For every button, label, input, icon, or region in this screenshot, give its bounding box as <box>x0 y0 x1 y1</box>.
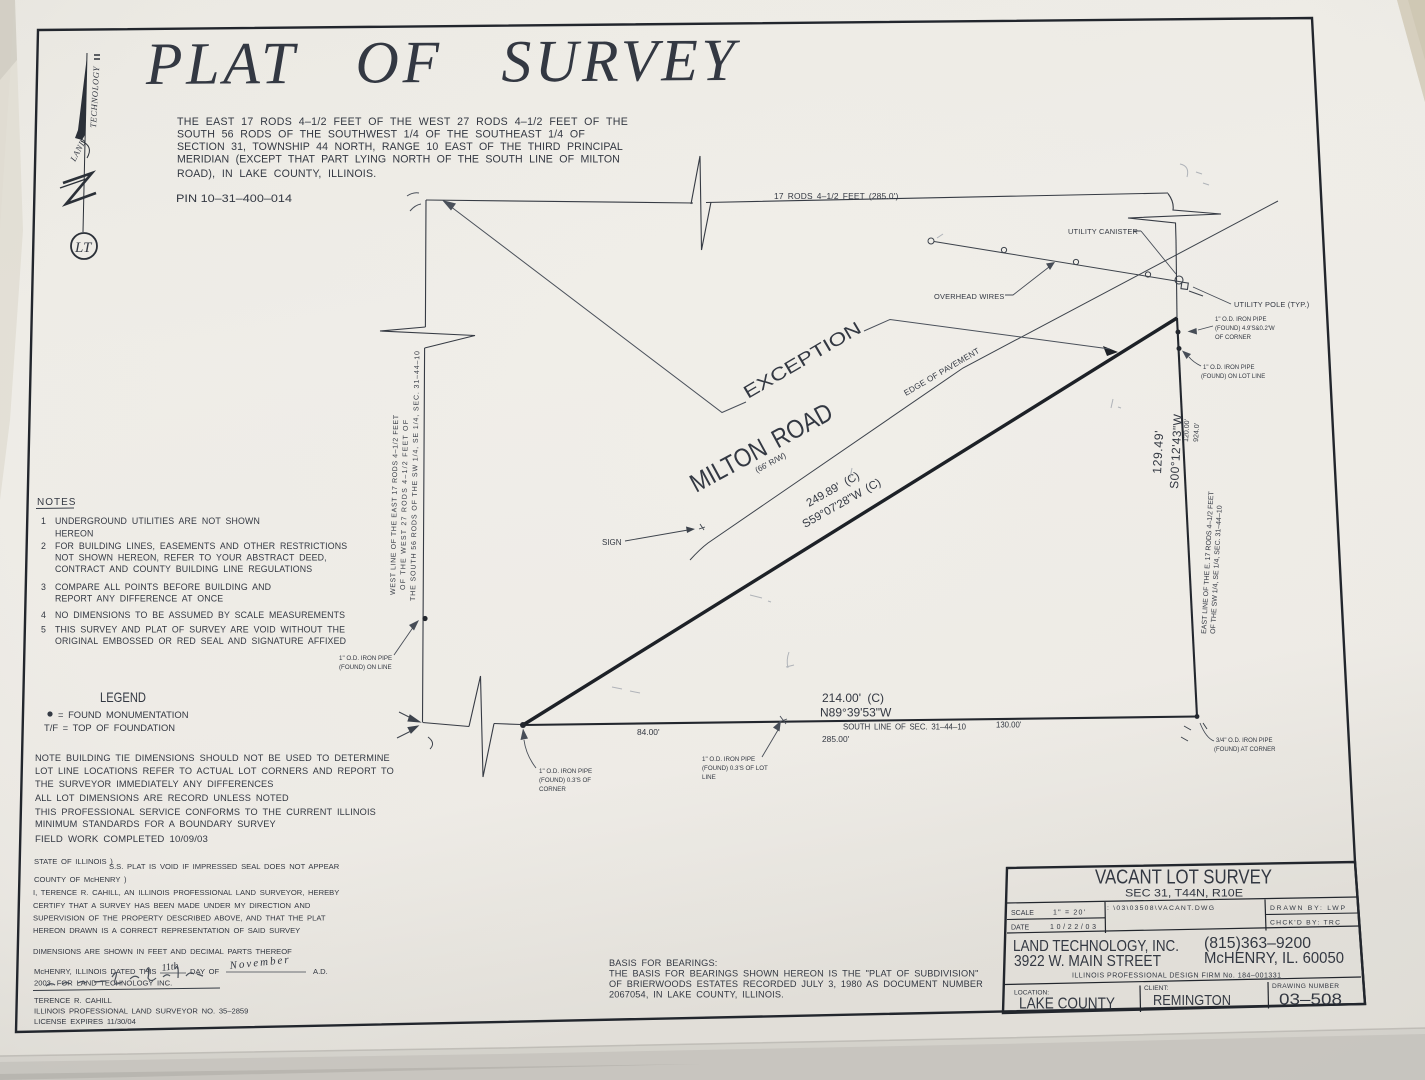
svg-text:T/F = TOP OF FOUNDATION: T/F = TOP OF FOUNDATION <box>44 722 175 733</box>
svg-text:SOUTH LINE OF SEC. 31–44–10: SOUTH LINE OF SEC. 31–44–10 <box>843 723 967 732</box>
svg-text:03–508: 03–508 <box>1279 992 1342 1009</box>
svg-text:DRAWING NUMBER: DRAWING NUMBER <box>1272 983 1339 990</box>
svg-text:129.49': 129.49' <box>1150 430 1166 474</box>
svg-text:COUNTY OF McHENRY ): COUNTY OF McHENRY ) <box>34 875 127 884</box>
svg-text:OF BRIERWOODS ESTATES RECORDED: OF BRIERWOODS ESTATES RECORDED JULY 3, 1… <box>609 979 983 989</box>
svg-text:1" O.D. IRON PIPE: 1" O.D. IRON PIPE <box>1215 317 1266 323</box>
svg-text:1" O.D. IRON PIPE: 1" O.D. IRON PIPE <box>539 768 592 775</box>
svg-text:SIGN: SIGN <box>602 538 622 547</box>
svg-text:DAY OF: DAY OF <box>190 967 220 976</box>
svg-text:214.00' (C): 214.00' (C) <box>822 691 884 705</box>
svg-text:3922 W. MAIN STREET: 3922 W. MAIN STREET <box>1014 953 1161 970</box>
svg-text:MINIMUM STANDARDS FOR A BOUNDA: MINIMUM STANDARDS FOR A BOUNDARY SURVEY <box>35 819 276 829</box>
svg-text:STATE OF ILLINOIS ): STATE OF ILLINOIS ) <box>34 857 113 866</box>
svg-text:I, TERENCE R. CAHILL, AN ILLIN: I, TERENCE R. CAHILL, AN ILLINOIS PROFES… <box>33 888 339 897</box>
svg-text:17 RODS 4–1/2 FEET (285.0'): 17 RODS 4–1/2 FEET (285.0') <box>774 191 899 201</box>
svg-text:: \03\03508\VACANT.DWG: : \03\03508\VACANT.DWG <box>1107 905 1214 912</box>
svg-text:CORNER: CORNER <box>539 786 566 793</box>
svg-text:3/4" O.D. IRON PIPE: 3/4" O.D. IRON PIPE <box>1216 738 1272 744</box>
svg-text:LINE: LINE <box>702 774 716 781</box>
svg-text:4: 4 <box>41 610 46 620</box>
svg-text:LT: LT <box>74 240 93 256</box>
svg-text:N89°39'53"W: N89°39'53"W <box>820 706 892 720</box>
svg-text:ALL LOT DIMENSIONS ARE RECORD: ALL LOT DIMENSIONS ARE RECORD UNLESS NOT… <box>35 793 289 803</box>
svg-text:THIS PROFESSIONAL SERVICE CONF: THIS PROFESSIONAL SERVICE CONFORMS TO TH… <box>35 807 376 817</box>
svg-text:NO DIMENSIONS TO BE ASSUMED BY: NO DIMENSIONS TO BE ASSUMED BY SCALE MEA… <box>55 610 345 620</box>
svg-text:2: 2 <box>41 541 46 551</box>
svg-text:(FOUND) 0.3'S OF: (FOUND) 0.3'S OF <box>539 777 591 784</box>
svg-text:PIN 10–31–400–014: PIN 10–31–400–014 <box>176 193 292 205</box>
svg-text:130.00': 130.00' <box>996 721 1022 730</box>
svg-text:2067054, IN LAKE COUNTY, ILLIN: 2067054, IN LAKE COUNTY, ILLINOIS. <box>609 990 784 1000</box>
svg-text:1: 1 <box>41 516 46 526</box>
svg-text:McHENRY, IL. 60050: McHENRY, IL. 60050 <box>1204 950 1344 967</box>
svg-text:MERIDIAN (EXCEPT THAT PART LYI: MERIDIAN (EXCEPT THAT PART LYING NORTH O… <box>177 154 620 166</box>
svg-text:1" O.D. IRON PIPE: 1" O.D. IRON PIPE <box>339 655 392 662</box>
svg-text:CONTRACT AND COUNTY BUILDING L: CONTRACT AND COUNTY BUILDING LINE REGULA… <box>55 564 312 574</box>
svg-text:LICENSE EXPIRES 11/30/04: LICENSE EXPIRES 11/30/04 <box>34 1017 136 1026</box>
svg-text:DRAWN BY: LWP: DRAWN BY: LWP <box>1270 905 1345 912</box>
svg-text:(FOUND) 0.3'S OF LOT: (FOUND) 0.3'S OF LOT <box>702 765 768 772</box>
svg-text:SOUTH 56 RODS OF THE SOUTHWEST: SOUTH 56 RODS OF THE SOUTHWEST 1/4 OF TH… <box>177 129 585 141</box>
svg-text:DATE: DATE <box>1011 925 1029 932</box>
svg-text:OF CORNER: OF CORNER <box>1215 335 1252 341</box>
svg-text:SUPERVISION OF THE PROPERTY DE: SUPERVISION OF THE PROPERTY DESCRIBED AB… <box>33 914 326 923</box>
svg-text:(FOUND) 4.9'S&0.2'W: (FOUND) 4.9'S&0.2'W <box>1215 326 1275 332</box>
svg-text:UTILITY POLE (TYP.): UTILITY POLE (TYP.) <box>1234 300 1309 309</box>
svg-text:SEC 31, T44N, R10E: SEC 31, T44N, R10E <box>1125 888 1243 900</box>
svg-text:5: 5 <box>41 625 46 635</box>
svg-text:SECTION 31, TOWNSHIP 44 NORTH,: SECTION 31, TOWNSHIP 44 NORTH, RANGE 10 … <box>177 141 623 153</box>
svg-text:REMINGTON: REMINGTON <box>1153 993 1231 1009</box>
svg-text:924.0': 924.0' <box>1193 423 1201 442</box>
svg-text:1" O.D. IRON PIPE: 1" O.D. IRON PIPE <box>702 756 755 763</box>
svg-text:2003. FOR LAND TECHNOLOGY IN: 2003. FOR LAND TECHNOLOGY INC. <box>34 979 172 988</box>
svg-text:OVERHEAD WIRES: OVERHEAD WIRES <box>934 292 1005 301</box>
svg-text:UTILITY CANISTER: UTILITY CANISTER <box>1068 227 1138 236</box>
svg-text:3: 3 <box>41 582 46 592</box>
svg-text:NOTES: NOTES <box>37 497 76 508</box>
svg-text:(FOUND) ON LINE: (FOUND) ON LINE <box>339 664 392 671</box>
svg-text:DIMENSIONS ARE SHOWN IN FEET A: DIMENSIONS ARE SHOWN IN FEET AND DECIMAL… <box>33 947 292 956</box>
svg-text:A.D.: A.D. <box>313 967 328 976</box>
svg-text:285.00': 285.00' <box>822 734 850 744</box>
svg-text:FIELD WORK COMPLETED 10/09/03: FIELD WORK COMPLETED 10/09/03 <box>35 834 208 845</box>
svg-text:ILLINOIS PROFESSIONAL DESIGN F: ILLINOIS PROFESSIONAL DESIGN FIRM No. 18… <box>1072 973 1281 980</box>
svg-text:1" = 20': 1" = 20' <box>1053 910 1085 917</box>
svg-text:84.00': 84.00' <box>637 727 660 737</box>
svg-text:LOT LINE LOCATIONS REFER TO A: LOT LINE LOCATIONS REFER TO ACTUAL LOT C… <box>35 766 394 776</box>
svg-text:(FOUND) AT CORNER: (FOUND) AT CORNER <box>1214 747 1276 753</box>
svg-text:NOT SHOWN HEREON, REFER TO YOU: NOT SHOWN HEREON, REFER TO YOUR ABSTRACT… <box>55 553 327 563</box>
svg-text:REPORT ANY DIFFERENCE AT ONCE: REPORT ANY DIFFERENCE AT ONCE <box>55 594 223 604</box>
svg-text:VACANT LOT SURVEY: VACANT LOT SURVEY <box>1095 866 1272 889</box>
svg-text:PLAT OF SURVEY: PLAT OF SURVEY <box>145 27 741 97</box>
svg-text:CERTIFY THAT A SURVEY HAS BEEN: CERTIFY THAT A SURVEY HAS BEEN MADE UNDE… <box>33 901 311 910</box>
svg-text:NOTE BUILDING TIE DIMENSIONS: NOTE BUILDING TIE DIMENSIONS SHOULD NOT … <box>35 753 390 763</box>
svg-text:= FOUND MONUMENTATION: = FOUND MONUMENTATION <box>58 709 188 720</box>
svg-text:ROAD), IN LAKE COUNTY, ILLINOI: ROAD), IN LAKE COUNTY, ILLINOIS. <box>177 168 376 180</box>
svg-text:COMPARE ALL POINTS BEFORE BUIL: COMPARE ALL POINTS BEFORE BUILDING AND <box>55 582 271 592</box>
svg-text:CLIENT:: CLIENT: <box>1144 985 1169 992</box>
svg-text:McHENRY, ILLINOIS DATED THIS: McHENRY, ILLINOIS DATED THIS <box>34 967 156 976</box>
svg-text:LEGEND: LEGEND <box>100 689 146 705</box>
svg-text:FOR BUILDING LINES, EASEMENTS: FOR BUILDING LINES, EASEMENTS AND OTHER … <box>55 541 347 551</box>
svg-text:UNDERGROUND UTILITIES ARE NOT: UNDERGROUND UTILITIES ARE NOT SHOWN <box>55 516 260 526</box>
svg-text:HEREON: HEREON <box>55 529 94 539</box>
svg-text:SCALE: SCALE <box>1011 910 1034 917</box>
svg-text:THE EAST 17 RODS 4–1/2 FEET OF: THE EAST 17 RODS 4–1/2 FEET OF THE WEST … <box>177 116 628 128</box>
svg-text:TERENCE R. CAHILL: TERENCE R. CAHILL <box>34 996 112 1005</box>
svg-text:1" O.D. IRON PIPE: 1" O.D. IRON PIPE <box>1203 365 1254 371</box>
svg-text:THIS SURVEY AND PLAT OF SURVEY: THIS SURVEY AND PLAT OF SURVEY ARE VOID … <box>55 625 345 635</box>
svg-text:BASIS FOR BEARINGS:: BASIS FOR BEARINGS: <box>609 958 717 968</box>
svg-text:HEREON DRAWN IS A CORRECT REPR: HEREON DRAWN IS A CORRECT REPRESENTATION… <box>33 926 300 935</box>
svg-text:THE SURVEYOR IMMEDIATELY ANY D: THE SURVEYOR IMMEDIATELY ANY DIFFERENCES <box>35 779 274 789</box>
svg-text:THE BASIS FOR BEARINGS SHOWN H: THE BASIS FOR BEARINGS SHOWN HEREON IS T… <box>609 969 978 979</box>
svg-text:(FOUND) ON LOT LINE: (FOUND) ON LOT LINE <box>1201 374 1265 380</box>
svg-text:ORIGINAL EMBOSSED OR RED SEAL: ORIGINAL EMBOSSED OR RED SEAL AND SIGNAT… <box>55 636 346 646</box>
svg-text:S.S. PLAT IS VOID IF IMPRESSE: S.S. PLAT IS VOID IF IMPRESSED SEAL DOES… <box>109 862 340 871</box>
svg-text:ILLINOIS PROFESSIONAL LAND SUR: ILLINOIS PROFESSIONAL LAND SURVEYOR NO. … <box>34 1007 248 1016</box>
svg-text:120.00': 120.00' <box>1183 419 1191 442</box>
svg-text:LAKE COUNTY: LAKE COUNTY <box>1019 996 1115 1013</box>
